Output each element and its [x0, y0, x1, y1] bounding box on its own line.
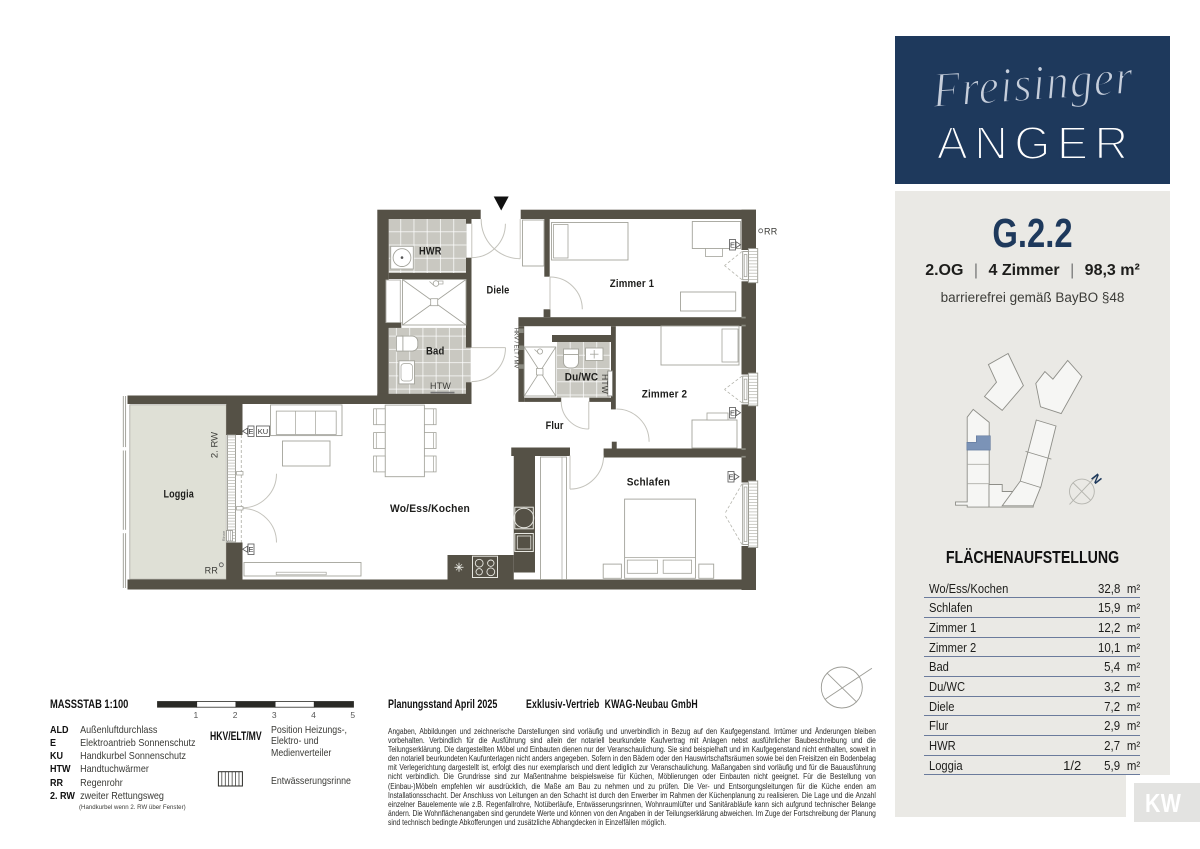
svg-text:1: 1	[194, 710, 199, 720]
svg-text:2: 2	[233, 710, 238, 720]
svg-text:HTW: HTW	[600, 374, 610, 394]
svg-text:E: E	[728, 473, 733, 482]
svg-text:4: 4	[311, 710, 316, 720]
svg-text:Diele: Diele	[487, 284, 510, 296]
svg-text:E: E	[248, 545, 253, 554]
svg-text:HWR: HWR	[419, 246, 442, 258]
svg-text:5: 5	[350, 710, 355, 720]
svg-text:Bad: Bad	[426, 346, 445, 358]
svg-text:N: N	[1088, 471, 1104, 486]
svg-text:Schlafen: Schlafen	[627, 476, 671, 488]
svg-text:E: E	[730, 241, 735, 250]
svg-text:Rinne: Rinne	[221, 530, 226, 541]
svg-text:HTW: HTW	[430, 381, 451, 392]
svg-text:Flur: Flur	[546, 420, 564, 432]
svg-text:2. RW: 2. RW	[210, 432, 221, 458]
svg-text:Zimmer 2: Zimmer 2	[642, 389, 688, 401]
svg-text:HKV / ELT / MV: HKV / ELT / MV	[513, 328, 519, 369]
svg-text:3: 3	[272, 710, 277, 720]
svg-text:Du/WC: Du/WC	[565, 372, 599, 384]
svg-text:RR: RR	[205, 566, 219, 576]
svg-text:RR: RR	[764, 227, 778, 237]
svg-text:E: E	[730, 409, 735, 418]
svg-text:Wo/Ess/Kochen: Wo/Ess/Kochen	[390, 503, 470, 515]
svg-text:Zimmer 1: Zimmer 1	[610, 278, 655, 290]
svg-text:Loggia: Loggia	[163, 488, 194, 500]
svg-text:E: E	[248, 427, 253, 436]
svg-text:KU: KU	[258, 427, 268, 436]
